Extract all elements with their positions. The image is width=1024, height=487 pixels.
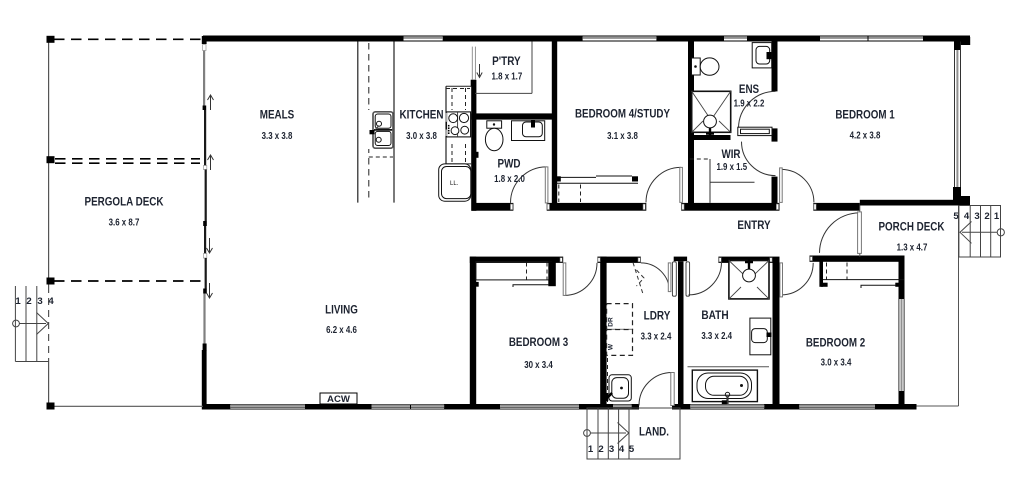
svg-text:1: 1 — [15, 296, 21, 307]
svg-text:3.6 x 8.7: 3.6 x 8.7 — [109, 218, 140, 229]
svg-text:3.3 x 2.4: 3.3 x 2.4 — [701, 331, 732, 342]
svg-text:3.0 x 3.4: 3.0 x 3.4 — [821, 358, 852, 369]
svg-text:W: W — [608, 343, 615, 350]
svg-text:LAND.: LAND. — [639, 425, 669, 439]
svg-text:BATH: BATH — [701, 308, 728, 322]
svg-text:5: 5 — [629, 444, 635, 455]
svg-text:BEDROOM 3: BEDROOM 3 — [509, 335, 568, 349]
svg-text:3.0 x 3.8: 3.0 x 3.8 — [406, 131, 437, 142]
svg-text:BEDROOM 4/STUDY: BEDROOM 4/STUDY — [575, 107, 671, 121]
svg-text:4: 4 — [48, 296, 54, 307]
svg-text:MEALS: MEALS — [260, 108, 295, 122]
svg-text:1.8 x 2.0: 1.8 x 2.0 — [494, 174, 525, 185]
svg-text:KITCHEN: KITCHEN — [400, 108, 444, 122]
svg-text:1: 1 — [588, 444, 594, 455]
svg-text:BEDROOM 2: BEDROOM 2 — [806, 335, 865, 349]
svg-text:ENS: ENS — [739, 82, 759, 96]
svg-text:ENTRY: ENTRY — [737, 218, 771, 232]
svg-text:1.9 x 2.2: 1.9 x 2.2 — [734, 99, 765, 110]
svg-text:30 x 3.4: 30 x 3.4 — [524, 360, 553, 371]
svg-text:PORCH DECK: PORCH DECK — [879, 220, 945, 234]
svg-text:1: 1 — [994, 211, 1000, 222]
svg-text:2: 2 — [598, 444, 603, 455]
svg-text:BEDROOM 1: BEDROOM 1 — [835, 107, 894, 121]
svg-text:3.3 x 2.4: 3.3 x 2.4 — [641, 332, 672, 343]
svg-text:2: 2 — [26, 296, 31, 307]
svg-text:4: 4 — [964, 211, 970, 222]
svg-text:4.2 x 3.8: 4.2 x 3.8 — [850, 131, 881, 142]
svg-text:3: 3 — [37, 296, 42, 307]
svg-text:3: 3 — [974, 211, 979, 222]
svg-text:1.9 x 1.5: 1.9 x 1.5 — [716, 162, 747, 173]
svg-text:1.3 x 4.7: 1.3 x 4.7 — [897, 243, 928, 254]
svg-text:LL.: LL. — [450, 181, 459, 187]
svg-text:LDRY: LDRY — [644, 308, 671, 322]
svg-text:ACW: ACW — [327, 394, 351, 405]
svg-text:1.8 x 1.7: 1.8 x 1.7 — [492, 72, 523, 83]
svg-text:DR: DR — [608, 317, 615, 327]
svg-text:LIVING: LIVING — [325, 302, 358, 316]
svg-text:2: 2 — [984, 211, 989, 222]
svg-text:6.2 x 4.6: 6.2 x 4.6 — [326, 325, 357, 336]
svg-text:4: 4 — [619, 444, 625, 455]
svg-text:WIR: WIR — [722, 147, 741, 161]
svg-text:PWD: PWD — [498, 157, 521, 171]
svg-text:3: 3 — [609, 444, 614, 455]
svg-text:3.1 x 3.8: 3.1 x 3.8 — [607, 131, 638, 142]
svg-text:P'TRY: P'TRY — [492, 54, 521, 68]
svg-text:3.3 x 3.8: 3.3 x 3.8 — [262, 131, 293, 142]
svg-text:PERGOLA DECK: PERGOLA DECK — [85, 194, 164, 208]
svg-text:5: 5 — [953, 211, 959, 222]
